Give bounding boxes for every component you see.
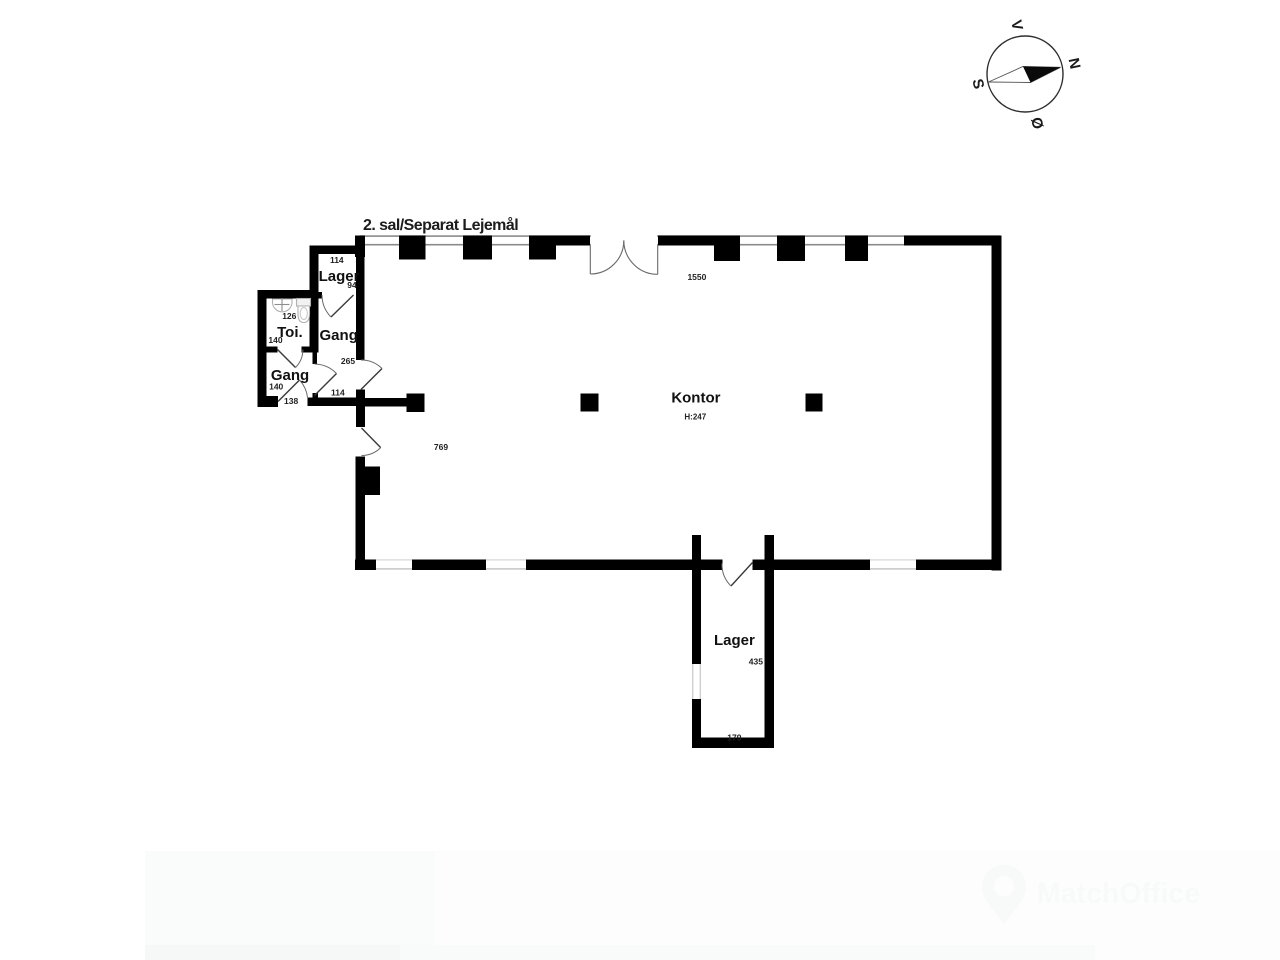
svg-text:1550: 1550 xyxy=(687,272,706,282)
svg-text:265: 265 xyxy=(341,356,355,366)
svg-text:H:247: H:247 xyxy=(684,413,706,422)
svg-text:769: 769 xyxy=(434,442,448,452)
svg-text:140: 140 xyxy=(268,335,282,345)
svg-text:MatchOffice: MatchOffice xyxy=(1037,878,1200,910)
svg-text:435: 435 xyxy=(749,657,763,667)
svg-text:114: 114 xyxy=(330,255,344,265)
svg-text:179: 179 xyxy=(727,733,741,743)
svg-text:Lager: Lager xyxy=(714,632,755,649)
svg-text:Gang: Gang xyxy=(320,327,358,344)
svg-text:2. sal/Separat Lejemål: 2. sal/Separat Lejemål xyxy=(363,216,518,234)
svg-text:138: 138 xyxy=(284,396,298,406)
svg-text:94: 94 xyxy=(347,280,357,290)
svg-text:114: 114 xyxy=(331,388,345,398)
svg-text:Kontor: Kontor xyxy=(671,390,720,407)
svg-text:126: 126 xyxy=(282,311,296,321)
svg-text:140: 140 xyxy=(269,382,283,392)
